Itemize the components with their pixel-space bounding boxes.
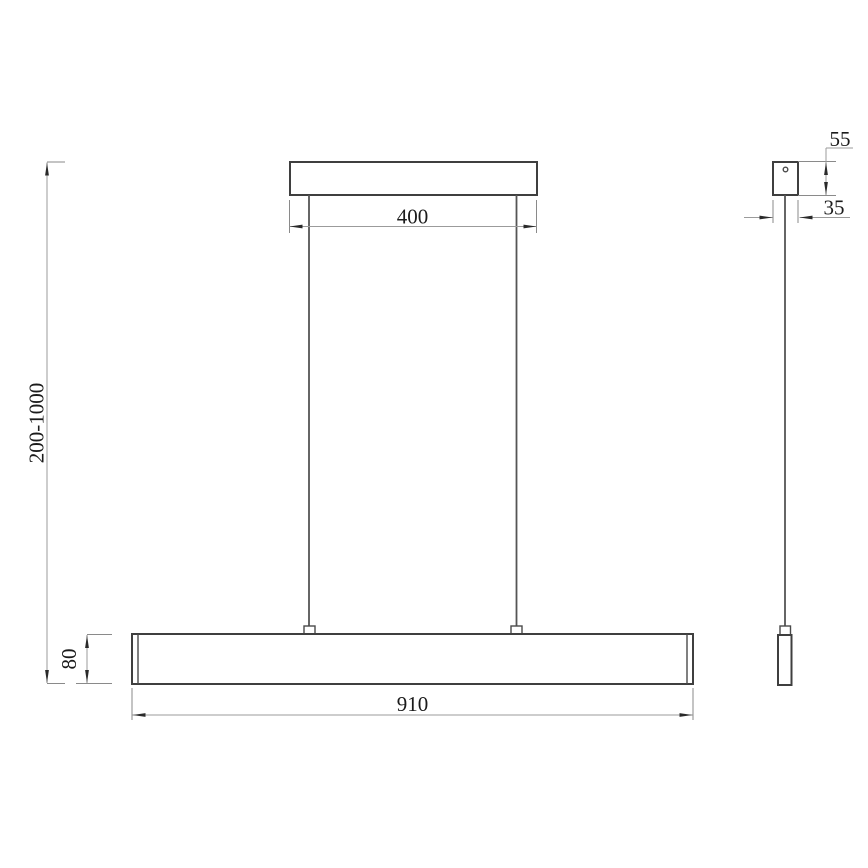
dimension-label-side-canopy-height: 55: [830, 127, 851, 151]
front-view: [132, 162, 693, 684]
side-view: [773, 162, 798, 685]
dimension-side-canopy-width: 35: [744, 196, 850, 224]
wire-connector-side: [780, 626, 791, 635]
dimension-label-bar-height: 80: [57, 649, 81, 670]
pendant-lamp-dimension-drawing: 400 200-1000 80 910: [0, 0, 868, 868]
dimension-bar-height: 80: [57, 635, 112, 684]
dimension-label-canopy-width: 400: [397, 205, 429, 229]
light-bar-side: [778, 635, 792, 685]
dimension-canopy-width: 400: [290, 200, 537, 233]
dimension-label-side-canopy-width: 35: [824, 196, 845, 220]
dimension-suspension-height: 200-1000: [25, 162, 66, 684]
dimension-bar-length: 910: [132, 688, 693, 720]
dimension-label-suspension-height: 200-1000: [25, 383, 49, 464]
dimension-side-canopy-height: 55: [798, 127, 853, 196]
ceiling-canopy-front: [290, 162, 537, 195]
technical-drawing-canvas: 400 200-1000 80 910: [0, 0, 868, 868]
wire-connector-right: [511, 626, 522, 634]
wire-connector-left: [304, 626, 315, 634]
dimension-label-bar-length: 910: [397, 692, 429, 716]
canopy-screw-hole: [783, 167, 788, 172]
light-bar-front: [132, 634, 693, 684]
